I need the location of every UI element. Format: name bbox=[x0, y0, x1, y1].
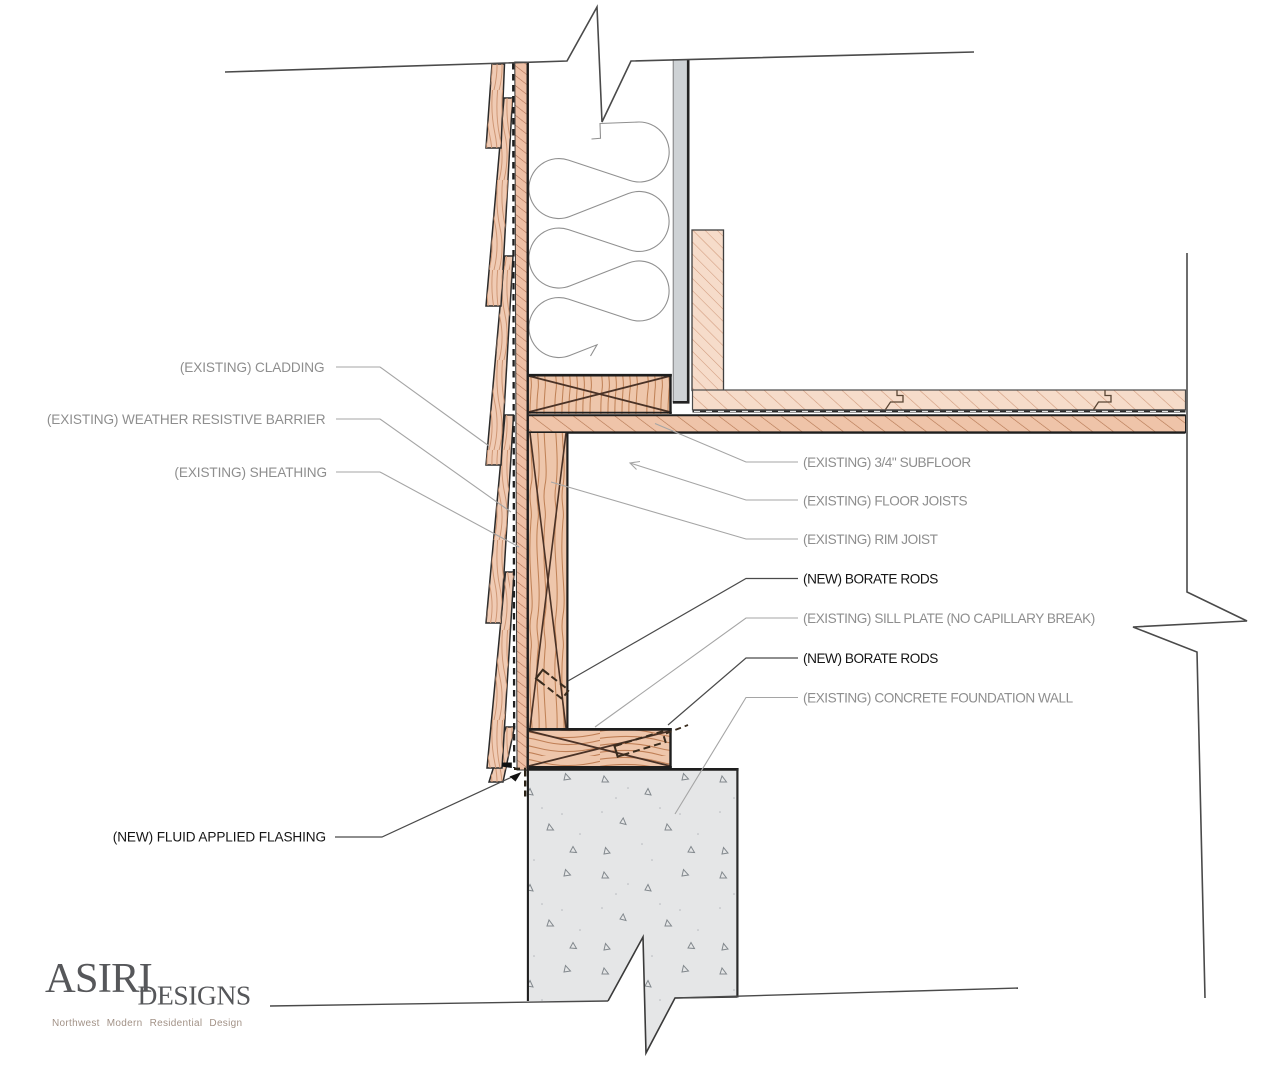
svg-text:(EXISTING) CONCRETE FOUNDATION: (EXISTING) CONCRETE FOUNDATION WALL bbox=[803, 691, 1074, 706]
svg-text:(EXISTING) RIM JOIST: (EXISTING) RIM JOIST bbox=[803, 532, 938, 547]
svg-text:ASIRI: ASIRI bbox=[45, 955, 152, 1002]
svg-text:(NEW) BORATE RODS: (NEW) BORATE RODS bbox=[803, 651, 938, 666]
svg-text:(EXISTING) 3/4" SUBFLOOR: (EXISTING) 3/4" SUBFLOOR bbox=[803, 455, 971, 470]
svg-text:(EXISTING) SILL PLATE (NO CAPI: (EXISTING) SILL PLATE (NO CAPILLARY BREA… bbox=[803, 611, 1095, 626]
svg-text:(EXISTING) CLADDING: (EXISTING) CLADDING bbox=[180, 360, 325, 375]
svg-text:(NEW) BORATE RODS: (NEW) BORATE RODS bbox=[803, 572, 938, 587]
svg-text:(EXISTING) WEATHER RESISTIVE B: (EXISTING) WEATHER RESISTIVE BARRIER bbox=[47, 412, 326, 427]
svg-text:(EXISTING) FLOOR JOISTS: (EXISTING) FLOOR JOISTS bbox=[803, 494, 968, 509]
svg-text:Northwest Modern Residential D: Northwest Modern Residential Design bbox=[52, 1018, 242, 1029]
svg-text:(NEW) FLUID APPLIED FLASHING: (NEW) FLUID APPLIED FLASHING bbox=[113, 830, 326, 845]
svg-text:(EXISTING) SHEATHING: (EXISTING) SHEATHING bbox=[174, 465, 327, 480]
svg-text:DESIGNS: DESIGNS bbox=[138, 980, 251, 1011]
